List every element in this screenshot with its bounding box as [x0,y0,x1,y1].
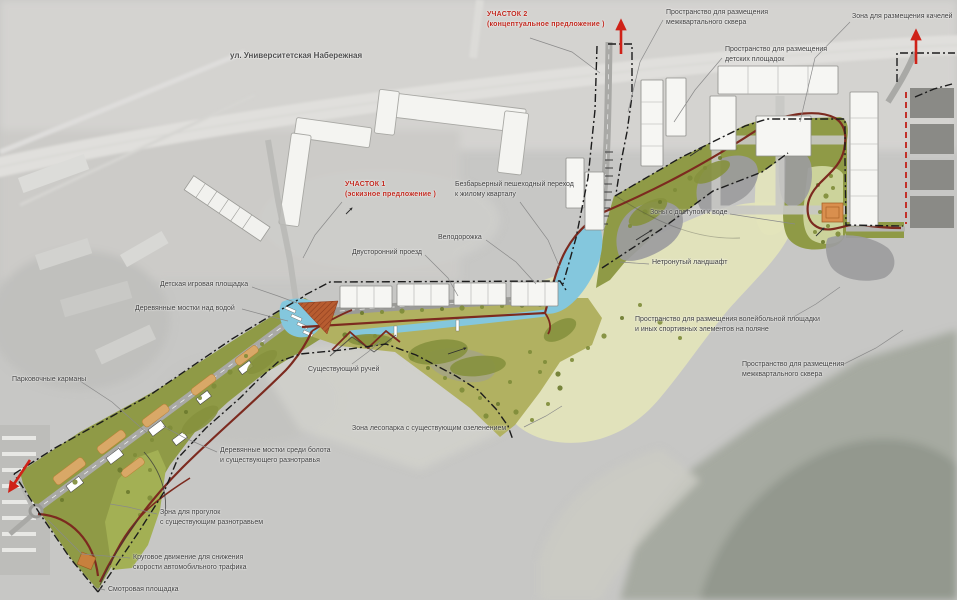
site-plan-drawing [0,0,957,600]
masterplan-canvas: ул. Университетская НабережнаяУЧАСТОК 2 … [0,0,957,600]
